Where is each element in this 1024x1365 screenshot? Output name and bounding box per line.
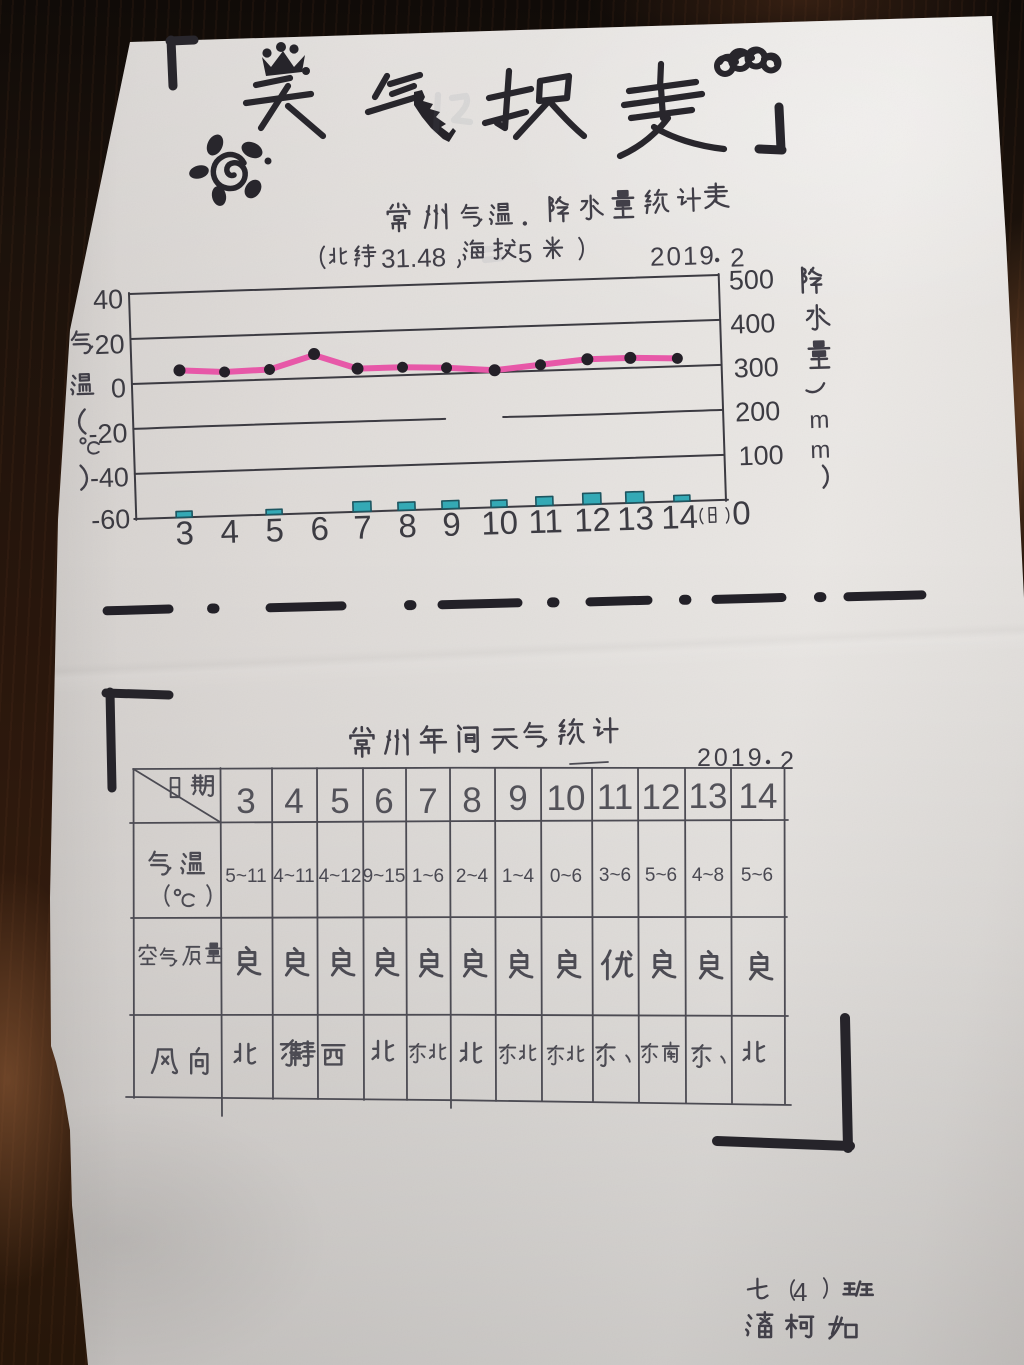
svg-text:10: 10 <box>481 504 519 542</box>
svg-text:13: 13 <box>689 777 728 816</box>
svg-text:31.48: 31.48 <box>381 242 447 274</box>
svg-text:4: 4 <box>793 1277 807 1307</box>
svg-text:100: 100 <box>738 440 784 471</box>
svg-text:6: 6 <box>374 782 393 821</box>
svg-text:4: 4 <box>284 782 303 821</box>
svg-text:4~12: 4~12 <box>319 866 362 887</box>
svg-text:3: 3 <box>175 514 195 552</box>
svg-text:9~15: 9~15 <box>363 866 406 887</box>
svg-text:-40: -40 <box>89 462 129 493</box>
svg-text:5: 5 <box>330 782 349 821</box>
svg-text:m: m <box>810 436 831 464</box>
svg-text:7: 7 <box>418 782 437 821</box>
svg-text:6: 6 <box>310 510 330 548</box>
svg-text:4~11: 4~11 <box>273 866 314 887</box>
svg-text:4: 4 <box>220 513 240 551</box>
svg-text:20: 20 <box>94 329 125 360</box>
svg-text:500: 500 <box>728 264 774 295</box>
svg-text:8: 8 <box>462 781 481 820</box>
svg-text:-60: -60 <box>91 504 131 535</box>
svg-text:0~6: 0~6 <box>550 866 582 887</box>
svg-text:5~11: 5~11 <box>225 866 266 887</box>
svg-text:14: 14 <box>661 498 699 536</box>
svg-text:1~6: 1~6 <box>412 866 444 887</box>
svg-text:3: 3 <box>236 782 255 821</box>
svg-text:7: 7 <box>353 508 373 546</box>
svg-text:400: 400 <box>730 308 776 339</box>
svg-text:m: m <box>809 406 830 434</box>
svg-text:2: 2 <box>780 747 794 775</box>
svg-text:-20: -20 <box>88 418 128 449</box>
svg-text:11: 11 <box>597 778 633 817</box>
svg-text:8: 8 <box>398 507 418 545</box>
svg-text:3~6: 3~6 <box>599 865 631 886</box>
svg-text:0: 0 <box>111 373 127 403</box>
svg-text:12: 12 <box>642 778 681 817</box>
svg-text:2~4: 2~4 <box>456 866 489 887</box>
svg-text:14: 14 <box>739 777 778 816</box>
svg-text:200: 200 <box>735 396 781 427</box>
svg-text:13: 13 <box>617 499 655 537</box>
svg-text:4~8: 4~8 <box>692 865 724 886</box>
svg-text:40: 40 <box>93 284 124 315</box>
svg-text:10: 10 <box>547 779 586 818</box>
svg-text:12: 12 <box>574 501 612 539</box>
svg-text:0: 0 <box>732 494 752 532</box>
svg-text:9: 9 <box>508 779 527 818</box>
svg-text:1~4: 1~4 <box>502 866 535 887</box>
svg-text:5: 5 <box>265 511 285 549</box>
svg-text:5~6: 5~6 <box>741 865 773 886</box>
svg-text:2019: 2019 <box>650 240 717 272</box>
svg-text:11: 11 <box>528 502 563 540</box>
svg-text:5: 5 <box>518 238 533 268</box>
svg-text:5~6: 5~6 <box>645 865 677 886</box>
svg-text:9: 9 <box>442 505 462 543</box>
svg-text:300: 300 <box>733 352 779 383</box>
